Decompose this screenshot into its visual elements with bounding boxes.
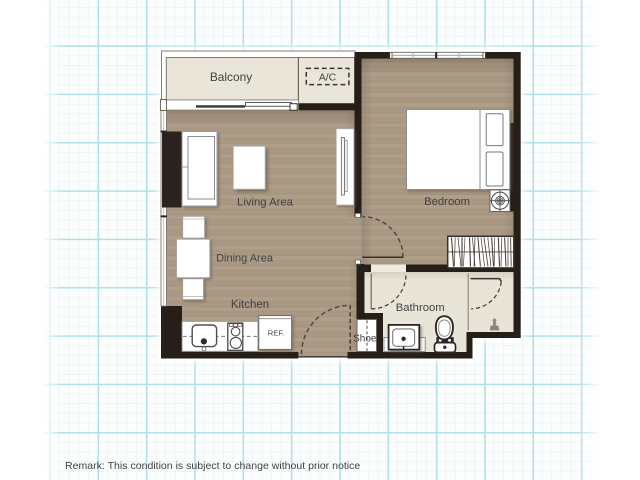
svg-text:Balcony: Balcony (210, 70, 252, 84)
svg-text:REF.: REF. (268, 329, 284, 338)
svg-text:Remark: This condition is subj: Remark: This condition is subject to cha… (65, 460, 360, 472)
svg-text:Bedroom: Bedroom (424, 196, 470, 208)
svg-text:Shoe: Shoe (353, 333, 377, 344)
svg-text:A/C: A/C (319, 72, 337, 83)
svg-text:Bathroom: Bathroom (396, 302, 445, 314)
svg-text:Dining Area: Dining Area (216, 253, 274, 265)
svg-text:Living Area: Living Area (237, 196, 294, 208)
svg-text:Kitchen: Kitchen (231, 299, 269, 311)
